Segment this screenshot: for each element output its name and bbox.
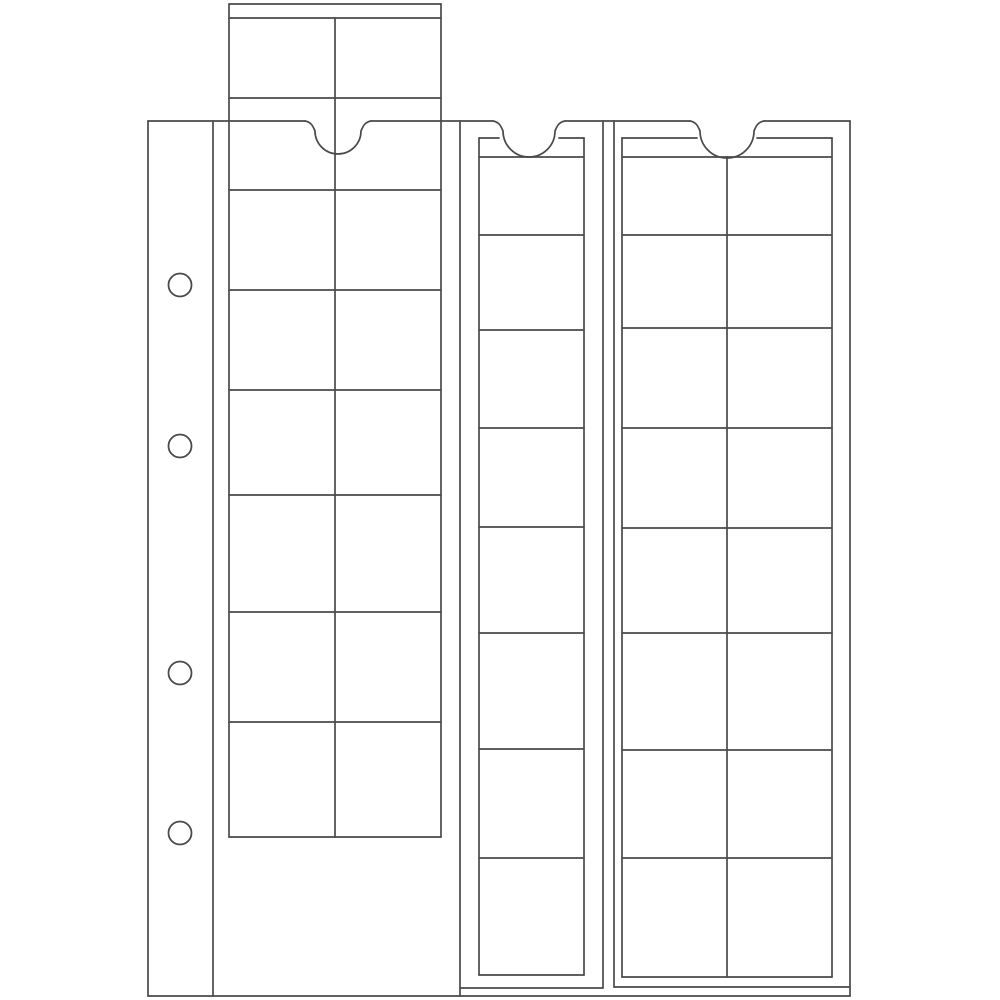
middle-slider-body [479, 138, 584, 975]
binder-hole [169, 662, 192, 685]
binder-hole [169, 822, 192, 845]
binder-hole [169, 274, 192, 297]
coin-sheet-diagram [0, 0, 1000, 1000]
binder-hole [169, 435, 192, 458]
coin-sheet-line-drawing [0, 0, 1000, 1000]
